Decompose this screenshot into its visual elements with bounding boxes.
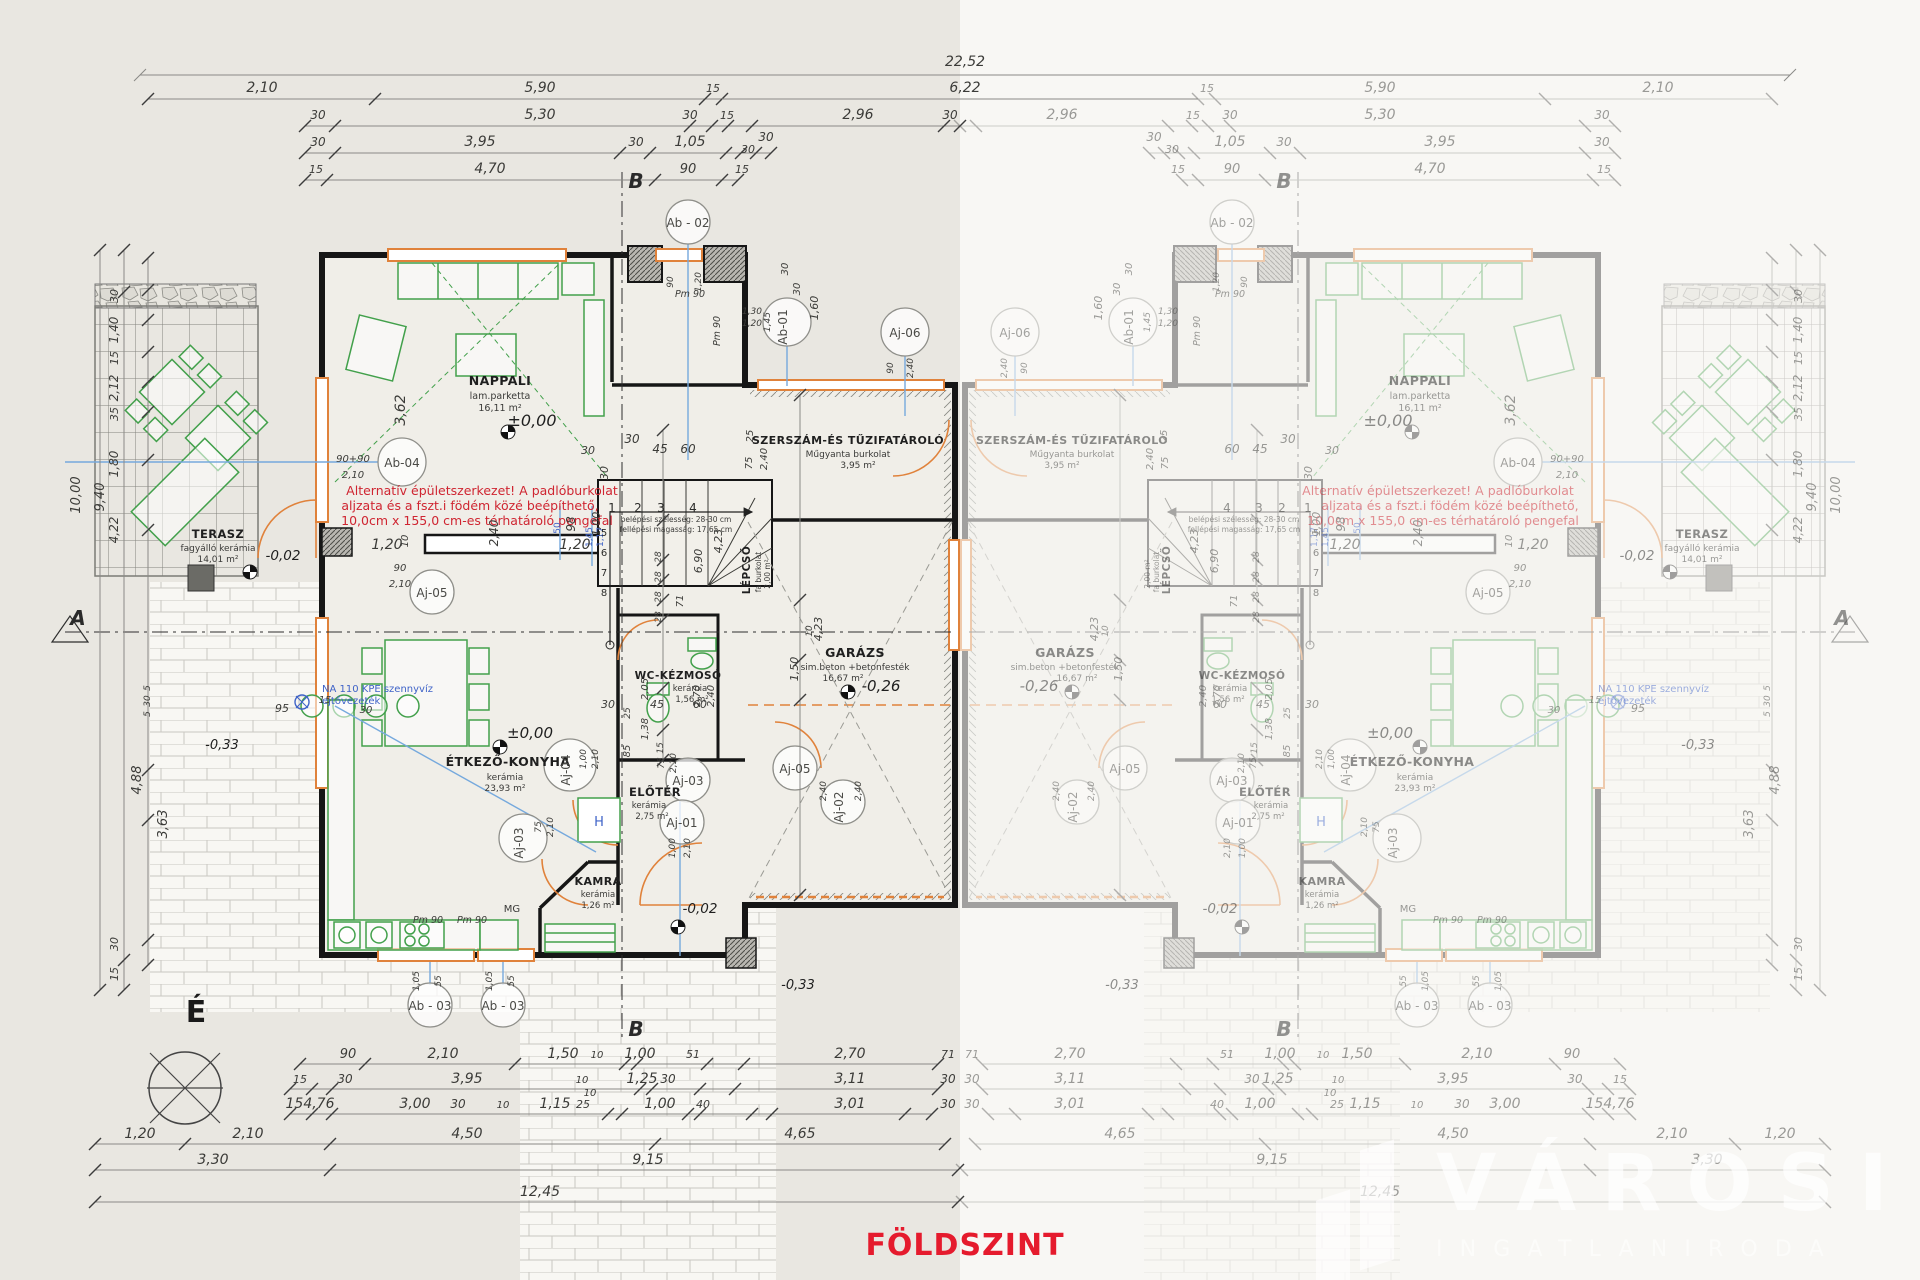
dim-label: 3,30 (197, 1152, 228, 1168)
dim-label: 35 (108, 407, 121, 421)
dim-label: 2,10 (1237, 753, 1247, 773)
dim-label: 30 (1280, 432, 1296, 446)
dim-label: 2,70 (1212, 685, 1223, 707)
dim-label: 3,00 (1489, 1096, 1520, 1112)
floor-plan-drawing: 22,526,222,105,9015305,3030152,9630303,9… (0, 0, 1920, 1280)
dim-label: kerámia (1305, 890, 1339, 900)
dim-label: 10 (591, 1050, 604, 1061)
drain-grate (726, 938, 756, 968)
dim-label: 30 (660, 1072, 676, 1086)
dim-label: 3,95 (451, 1071, 482, 1087)
dim-label: 25 (1330, 1098, 1344, 1111)
dim-label: 15 (309, 163, 323, 176)
note-sewer: NA 110 KPE szennyvíz (1598, 683, 1709, 695)
dim-label: Pm 90 (1477, 915, 1507, 926)
marker-ab02: Ab - 02 (1210, 216, 1253, 230)
section-a: A (68, 606, 85, 630)
dim-label: Pm 90 (675, 289, 705, 300)
dim-label: 1,20 (371, 537, 402, 553)
dim-label: -0,02 (683, 901, 718, 917)
dim-label: kerámia (581, 890, 615, 900)
dim-label: kerámia (1254, 801, 1288, 811)
dim-label: 50 (553, 522, 563, 534)
dim-label: 28 (654, 571, 664, 583)
dim-label: 30 (1305, 698, 1319, 711)
dim-label: 40 (1210, 1098, 1224, 1111)
dim-label: 15 (1200, 82, 1214, 95)
dim-label: 1,50 (1341, 1046, 1372, 1062)
dim-label: 3,95 (1424, 134, 1455, 150)
dim-label: 25 (623, 707, 633, 719)
dim-label: 30 (598, 466, 611, 480)
dim-label: 30 (1165, 143, 1179, 156)
dim-label: Aj-05 (1109, 762, 1140, 776)
dim-label: 55 (507, 975, 517, 987)
dim-label: 154,76 (1586, 1096, 1635, 1112)
dim-label: 10 (1317, 1050, 1330, 1061)
dim-label: 3,11 (834, 1071, 865, 1087)
dim-label: 2,10 (232, 1126, 263, 1142)
dim-label: 30 (601, 698, 615, 711)
dim-label: 90 (1514, 563, 1527, 574)
marker-ab01: Ab-01 (776, 309, 790, 344)
dim-label: 5 (143, 711, 153, 717)
dim-label: 30 (337, 1072, 353, 1086)
dim-label: 2 (1278, 501, 1286, 515)
dim-label: 15 (1250, 742, 1260, 754)
dim-label: Műgyanta burkolat (1030, 450, 1115, 460)
room-kamra: KAMRA (1299, 875, 1346, 888)
dim-label: 15 (108, 351, 121, 365)
dim-label: 4 (689, 501, 697, 515)
dim-label: 1,20 (124, 1126, 155, 1142)
dim-label: 90 (1224, 162, 1241, 177)
dim-label: 6 (1313, 548, 1319, 559)
dim-label: 90 (394, 563, 407, 574)
dim-label: fa burkolat (754, 552, 763, 593)
dim-label: Aj-05 (779, 762, 810, 776)
marker-aj05: Aj-05 (416, 586, 447, 600)
dim-label: 2,40 (487, 519, 501, 546)
dim-label: 1,80 (107, 450, 121, 477)
dim-label: 51 (686, 1048, 700, 1061)
dim-label: 30 (940, 1072, 956, 1086)
dim-label: 15 (1171, 163, 1185, 176)
dim-label: 8 (601, 588, 607, 599)
marker-aj03: Aj-03 (1216, 774, 1247, 788)
dim-label: sim.beton +betonfesték (1011, 662, 1121, 673)
dim-label: 10 (576, 1075, 589, 1086)
dim-label: 1,05 (674, 134, 705, 150)
dim-label: 71 (965, 1048, 979, 1061)
dim-label: 55 (434, 975, 444, 987)
dim-label: 28 (654, 551, 664, 563)
dim-label: 55 (1399, 975, 1409, 987)
dim-label: ±0,00 (1363, 411, 1412, 430)
dim-label: Aj-03 (512, 827, 526, 858)
dim-label: 2,40 (706, 685, 717, 707)
dim-label: 1,60 (808, 296, 821, 321)
dim-label: 90+90 (336, 454, 370, 465)
dim-label: 30 (1594, 135, 1610, 149)
dim-label: 2,10 (1360, 817, 1370, 837)
dim-label: 1,38 (640, 718, 651, 740)
dim-label: 30 (450, 1097, 466, 1111)
dim-label: 5,90 (1364, 80, 1395, 96)
dim-label: 30 (1792, 289, 1805, 303)
dim-label: 1,00 (668, 838, 678, 858)
dim-label: 90+90 (1550, 454, 1584, 465)
dim-label: 1,20 (742, 319, 762, 329)
dim-label: kerámia (632, 801, 666, 811)
dim-label: Pm 90 (1192, 316, 1203, 346)
dim-label: 15 (108, 967, 121, 981)
dim-label: 15 (293, 1073, 307, 1086)
dim-label: 2 (634, 501, 642, 515)
dim-label: sim.beton +betonfesték (801, 662, 911, 673)
dim-label: 10 (497, 1100, 510, 1111)
marker-ab03: Ab - 03 (408, 999, 451, 1013)
dim-label: 10 (805, 625, 815, 637)
dim-label: kerámia (1397, 773, 1433, 783)
dim-label: 1 (1304, 501, 1312, 515)
dim-label: 15 (1186, 109, 1200, 122)
note-alt-structure: Alternatív épületszerkezet! A padlóburko… (346, 483, 618, 498)
dim-label: 1,05 (1214, 134, 1245, 150)
dim-label: 28 (1252, 551, 1262, 563)
dim-label: 85 (622, 745, 633, 758)
dim-label: 30 (624, 432, 640, 446)
dim-label: -0,26 (862, 677, 901, 695)
dim-label: ±0,00 (507, 724, 553, 742)
dim-label: 7 (601, 568, 607, 579)
dim-label: -0,02 (1620, 548, 1655, 564)
room-etkezo-konyha: ÉTKEZŐ-KONYHA (1350, 754, 1475, 769)
dim-label: 75 (1160, 457, 1171, 470)
dim-label: 4,88 (130, 766, 145, 795)
dim-label: 1,50 (788, 657, 801, 682)
dim-label: 1,00 (1244, 1096, 1275, 1112)
dim-label: 2,96 (1046, 107, 1077, 123)
dim-label: 3,11 (1054, 1071, 1085, 1087)
dim-label: 1,05 (1494, 971, 1504, 991)
dim-label: kerámia (487, 773, 523, 783)
dim-label: 5,30 (524, 107, 555, 123)
dim-label: 2,40 (906, 358, 916, 378)
room-lepcso: LÉPCSŐ (1159, 546, 1173, 594)
dim-label: 10,00 (69, 476, 84, 513)
dim-label: 4,70 (474, 161, 505, 177)
dim-label: 25 (745, 430, 756, 443)
north-letter: É (186, 994, 207, 1030)
dim-label: 90 (680, 162, 697, 177)
dim-label: 4,22 (107, 517, 121, 544)
section-a: A (1832, 606, 1849, 630)
dim-label: 1,20 (1158, 319, 1178, 329)
room-garazs: GARÁZS (825, 645, 885, 660)
dim-label: 2,05 (1264, 678, 1275, 700)
dim-label: 1,40 (1791, 316, 1805, 343)
dim-label: 1,50 (547, 1046, 578, 1062)
dim-label: 1,40 (107, 316, 121, 343)
dim-overall-width: 22,52 (945, 54, 985, 70)
marker-ab04: Ab-04 (384, 456, 419, 470)
dim-label: 5 (1313, 528, 1319, 539)
dim-label: 3 (657, 501, 665, 515)
dim-label: 75 (534, 821, 544, 833)
dim-label: 30 (1302, 466, 1315, 480)
dim-label: 3,63 (156, 810, 171, 839)
dim-label: -0,33 (781, 978, 815, 993)
dim-label: 15 (656, 742, 666, 754)
marker-aj06: Aj-06 (889, 326, 920, 340)
room-szerszam: SZERSZÁM-ÉS TŰZIFATÁROLÓ (752, 433, 944, 447)
dim-label: 2,10 (591, 749, 601, 769)
dim-label: 2,10 (1315, 749, 1325, 769)
dim-label: 12,45 (1360, 1184, 1400, 1200)
marker-aj05: Aj-05 (1472, 586, 1503, 600)
dim-label: ejtővezeték (1598, 695, 1657, 707)
marker-ab01: Ab-01 (1122, 309, 1136, 344)
dim-label: 9,15 (632, 1152, 663, 1168)
dim-label: 30 (108, 289, 121, 303)
section-b: B (1276, 169, 1291, 193)
marker-aj02: Aj-02 (1066, 791, 1080, 822)
dim-label: 30 (310, 108, 326, 122)
dim-label: 85 (1282, 745, 1293, 758)
dim-label: Ab - 03 (481, 999, 524, 1013)
dim-label: 4,23 (1088, 617, 1101, 642)
dim-label: Pm 90 (413, 915, 443, 926)
dim-label: fa burkolat (1152, 552, 1161, 593)
dim-label: 1,00 (624, 1046, 655, 1062)
dim-label: 30 (1244, 1072, 1260, 1086)
dim-label: 25 (1159, 430, 1170, 443)
dim-label: 6,90 (1208, 549, 1221, 574)
dim-label: 8 (1313, 588, 1319, 599)
dim-label: 90 (1020, 362, 1030, 374)
dim-label: 3,95 m² (1044, 461, 1080, 471)
dim-label: 16,67 m² (822, 674, 863, 684)
dim-label: 30 (628, 135, 644, 149)
dim-label: 1,05 (1421, 971, 1431, 991)
marker-ab04: Ab-04 (1500, 456, 1535, 470)
room-terasz: TERASZ (192, 527, 244, 541)
dim-label: 6 (601, 548, 607, 559)
dim-label: 3,62 (393, 394, 409, 425)
dim-label: 30 (1222, 108, 1238, 122)
marker-aj04: Aj-04 (1339, 754, 1353, 785)
dim-label: ±0,00 (1367, 724, 1413, 742)
dim-label: aljzata és a fszt.i födém közé beépíthet… (1321, 498, 1578, 513)
dim-label: Pm 90 (457, 915, 487, 926)
dim-label: fagyálló kerámia (1664, 543, 1739, 554)
dim-label: 12,45 (520, 1184, 560, 1200)
dim-label: 51 (1220, 1048, 1234, 1061)
dim-label: 15 (1597, 163, 1611, 176)
dim-label: 30 (1792, 937, 1805, 951)
dim-label: belépési szélesség: 28-30 cm (1189, 515, 1300, 524)
dim-label: 2,40 (759, 448, 770, 470)
dim-label: Pm 90 (1215, 289, 1245, 300)
dim-label: fellépési magasság: 17,65 cm (1188, 525, 1300, 534)
dim-label: 30 (143, 695, 153, 707)
dim-label: 71 (941, 1048, 955, 1061)
dim-label: 90 (340, 1047, 357, 1062)
dim-label: 4,70 (1414, 161, 1445, 177)
dim-label: 2,10 (1556, 470, 1578, 481)
dim-label: 30 (964, 1072, 980, 1086)
dim-label: 98 (1334, 516, 1348, 532)
dim-label: 2,75 m² (1251, 812, 1284, 822)
dim-label: 35 (1792, 407, 1805, 421)
room-szerszam: SZERSZÁM-ÉS TŰZIFATÁROLÓ (976, 433, 1168, 447)
dim-label: B (1276, 1017, 1291, 1041)
dim-label: 3,00 (399, 1096, 430, 1112)
dim-label: 10 (400, 535, 411, 548)
dim-label: 14,01 m² (197, 555, 238, 565)
dim-label: 5 (1763, 711, 1773, 717)
dim-label: 95 (275, 702, 289, 715)
dim-label: 2,40 (854, 781, 864, 801)
dim-label: 10 (584, 1088, 597, 1099)
dim-label: 71 (675, 595, 686, 608)
dim-label: 55 (1472, 975, 1482, 987)
dim-label: 2,12 (1791, 375, 1805, 402)
dim-label: 16,67 m² (1056, 674, 1097, 684)
dim-label: 2,70 (1054, 1046, 1085, 1062)
dim-label: 2,10 (246, 80, 277, 96)
dim-label: 71 (1229, 595, 1240, 608)
dim-label: 30 (1594, 108, 1610, 122)
dim-label: 30 (940, 1097, 956, 1111)
dim-label: 2,40 (1087, 781, 1097, 801)
dim-label: 90 (1240, 276, 1250, 288)
dim-label: 2,40 (1052, 781, 1062, 801)
dim-label: 3,62 (1503, 394, 1519, 425)
dim-label: 30 (1124, 263, 1135, 276)
dim-label: 60 (1224, 442, 1240, 456)
dim-label: 30 (1146, 130, 1162, 144)
dim-label: 1,50 (1112, 657, 1125, 682)
dim-label: 154,76 (286, 1096, 335, 1112)
dim-label: 28 (1252, 611, 1262, 623)
marker-aj01: Aj-01 (1222, 816, 1253, 830)
room-nappali: NAPPALI (469, 373, 531, 388)
dim-label: 5,90 (524, 80, 555, 96)
dim-label: 30 (1763, 695, 1773, 707)
room-nappali: NAPPALI (1389, 373, 1451, 388)
room-garazs: GARÁZS (1035, 645, 1095, 660)
dim-label: 4,65 (1104, 1126, 1135, 1142)
dim-label: 50 (1353, 522, 1363, 534)
dim-label: 30 (581, 444, 595, 457)
room-terasz: TERASZ (1676, 527, 1728, 541)
dim-label: lam.parketta (470, 391, 531, 402)
dim-label: 30 (741, 143, 755, 156)
dim-label: 1,20 (1517, 537, 1548, 553)
dim-label: 23,93 m² (1394, 784, 1435, 794)
dim-label: 10 (1101, 625, 1111, 637)
dim-label: H (1316, 815, 1326, 830)
dim-label: 5 (1763, 685, 1773, 691)
dim-label: 4,65 (784, 1126, 815, 1142)
dim-label: 2,40 (1198, 685, 1209, 707)
dim-label: 90 (886, 362, 896, 374)
dim-label: ±0,00 (507, 411, 556, 430)
dim-label: 45 (650, 698, 664, 711)
dim-label: 2,12 (107, 375, 121, 402)
page-title: FÖLDSZINT (805, 1228, 1125, 1263)
note-sewer: NA 110 KPE szennyvíz (322, 683, 433, 695)
dim-label: 15 (735, 163, 749, 176)
dim-label: 25 (1283, 707, 1293, 719)
note-alt-structure: Alternatív épületszerkezet! A padlóburko… (1302, 483, 1574, 498)
dim-label: 30 (1325, 444, 1339, 457)
room-kamra: KAMRA (575, 875, 622, 888)
dim-label: 3,01 (834, 1096, 865, 1112)
dim-label: 23,93 m² (484, 784, 525, 794)
dim-label: 75 (744, 457, 755, 470)
dim-label: 1,45 (1143, 312, 1153, 332)
dim-label: ejtővezeték (322, 695, 381, 707)
dim-label: 30 (1567, 1072, 1583, 1086)
dim-label: 2,40 (1000, 358, 1010, 378)
dim-label: 2,96 (842, 107, 873, 123)
dim-label: 3 (1255, 501, 1263, 515)
dim-label: 2,40 (1145, 448, 1156, 470)
dim-label: 4,22 (1791, 517, 1805, 544)
dim-label: 1,05 (485, 971, 495, 991)
dim-label: 7 (1313, 568, 1319, 579)
dim-label: 4,88 (1768, 766, 1783, 795)
dim-label: Pm 90 (1433, 915, 1463, 926)
dim-label: 1,26 m² (1305, 901, 1338, 911)
room-etkezo-konyha: ÉTKEZŐ-KONYHA (446, 754, 571, 769)
dim-label: 2,10 (1509, 579, 1531, 590)
dim-label: 30 (758, 130, 774, 144)
marker-aj04: Aj-04 (559, 754, 573, 785)
dim-label: 1,05 (412, 971, 422, 991)
dim-label: 1,26 m² (581, 901, 614, 911)
marker-aj06: Aj-06 (999, 326, 1030, 340)
dim-label: MG (504, 904, 520, 915)
dim-label: 9,40 (93, 483, 108, 512)
dim-label: 30 (964, 1097, 980, 1111)
dim-label: 2,10 (427, 1046, 458, 1062)
dim-label: 15 (1613, 1073, 1627, 1086)
dim-label: -0,02 (266, 548, 301, 564)
dim-label: Ab - 03 (1395, 999, 1438, 1013)
dim-label: 1,00 (644, 1096, 675, 1112)
dim-label: 28 (1252, 591, 1262, 603)
dim-label: 30 (1548, 705, 1561, 716)
dim-label: -0,33 (1681, 738, 1715, 753)
dim-label: 2,10 (1223, 838, 1233, 858)
dim-label: 60 (680, 442, 696, 456)
dim-label: Aj-03 (1386, 827, 1400, 858)
dim-label: 10,00 (1829, 476, 1844, 513)
dim-label: 10 (1411, 1100, 1424, 1111)
dim-label: 4,50 (1437, 1126, 1468, 1142)
dim-label: 28 (1252, 571, 1262, 583)
dim-label: 9,15 (1256, 1152, 1287, 1168)
dim-label: 1,38 (1264, 718, 1275, 740)
dim-label: 45 (652, 442, 667, 456)
dim-label: 14,01 m² (1681, 555, 1722, 565)
dim-label: 30 (1112, 283, 1123, 296)
dim-label: 1,00 (579, 749, 589, 769)
